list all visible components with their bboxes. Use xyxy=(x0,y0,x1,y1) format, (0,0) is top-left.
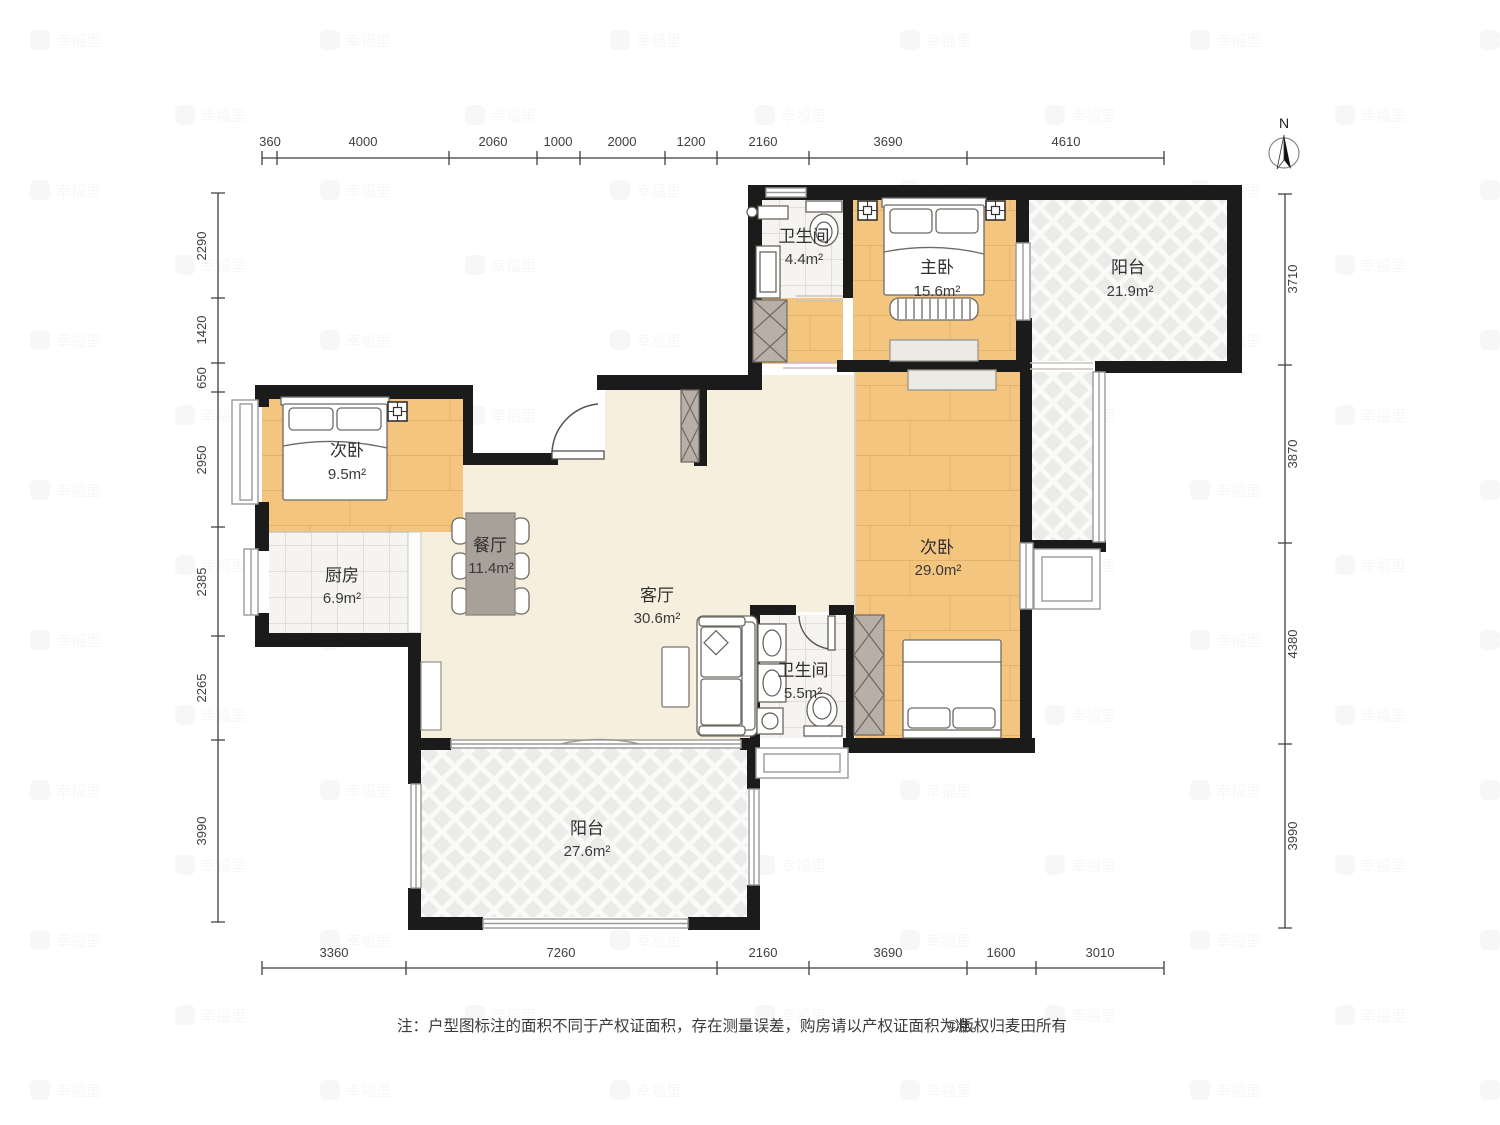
room-label-balcony-bottom: 阳台 xyxy=(570,819,604,838)
dim-top-5: 1200 xyxy=(677,134,706,149)
bench-master xyxy=(890,298,978,320)
ac-icon xyxy=(388,402,407,421)
dim-top-0: 360 xyxy=(259,134,281,149)
room-label-bedroom-left: 次卧 xyxy=(330,441,364,460)
coffee-table xyxy=(662,647,689,707)
sofa xyxy=(697,616,757,736)
dim-bottom-5: 3010 xyxy=(1086,945,1115,960)
window-balcony-bottom xyxy=(483,919,688,928)
dim-right-3: 3990 xyxy=(1285,822,1300,851)
dim-top-7: 3690 xyxy=(874,134,903,149)
bed-master xyxy=(882,198,986,295)
room-area-dining: 11.4m² xyxy=(468,560,514,577)
room-label-bath-bottom: 卫生间 xyxy=(778,661,829,680)
room-area-bath-top: 4.4m² xyxy=(785,251,823,268)
room-area-living: 30.6m² xyxy=(634,610,681,627)
bay-window-bath-bottom xyxy=(756,748,848,778)
dim-left-1: 1420 xyxy=(194,316,209,345)
room-area-master: 15.6m² xyxy=(914,283,961,300)
dim-top-8: 4610 xyxy=(1052,134,1081,149)
tv-cabinet xyxy=(421,662,441,730)
room-area-balcony-top: 21.9m² xyxy=(1107,283,1154,300)
dim-left-5: 2265 xyxy=(194,674,209,703)
bay-window-bedroom-right xyxy=(1034,549,1100,609)
wardrobe-bedroom-right xyxy=(854,615,884,735)
floor-plan-canvas: 幸福里 幸福里 xyxy=(0,0,1500,1125)
room-label-balcony-top: 阳台 xyxy=(1111,258,1145,277)
room-label-bath-top: 卫生间 xyxy=(779,227,830,246)
dim-top-1: 4000 xyxy=(349,134,378,149)
dim-right-2: 4380 xyxy=(1285,630,1300,659)
room-area-balcony-bottom: 27.6m² xyxy=(564,843,611,860)
dim-top-2: 2060 xyxy=(479,134,508,149)
room-label-bedroom-right: 次卧 xyxy=(920,538,954,557)
window-balcony-right xyxy=(749,789,759,885)
dim-bottom-3: 3690 xyxy=(874,945,903,960)
disclaimer-note: 注：户型图标注的面积不同于产权证面积，存在测量误差，购房请以产权证面积为准。 ©… xyxy=(397,1017,1067,1035)
room-area-bedroom-right: 29.0m² xyxy=(915,562,962,579)
copyright-text: ©版权归麦田所有 xyxy=(947,1017,1067,1035)
room-area-kitchen: 6.9m² xyxy=(323,590,361,607)
room-label-master: 主卧 xyxy=(920,258,954,277)
floor-plan-page: 幸福里 幸福里 xyxy=(0,0,1500,1125)
note-text: 注：户型图标注的面积不同于产权证面积，存在测量误差，购房请以产权证面积为准。 xyxy=(397,1017,986,1035)
dim-right-1: 3870 xyxy=(1285,440,1300,469)
bed-bedroom-right xyxy=(903,640,1001,738)
sliding-door-living-balcony xyxy=(451,740,741,749)
window-master-balcony xyxy=(1016,243,1030,320)
dim-bottom-2: 2160 xyxy=(749,945,778,960)
dim-bottom-1: 7260 xyxy=(547,945,576,960)
dim-top-4: 2000 xyxy=(608,134,637,149)
window-bath-top xyxy=(766,188,806,197)
room-area-bath-bottom: 5.5m² xyxy=(784,685,822,702)
north-label: N xyxy=(1279,115,1289,131)
dim-left-3: 2950 xyxy=(194,446,209,475)
dim-top-6: 2160 xyxy=(749,134,778,149)
bay-window-bedroom-left xyxy=(232,400,258,504)
dim-right-0: 3710 xyxy=(1285,265,1300,294)
ac-icon xyxy=(986,201,1005,220)
dim-left-4: 2385 xyxy=(194,568,209,597)
room-label-dining: 餐厅 xyxy=(473,536,507,555)
dim-left-2: 650 xyxy=(194,367,209,389)
dresser-bedroom-right xyxy=(908,370,996,390)
dim-left-0: 2290 xyxy=(194,232,209,261)
ac-icon xyxy=(858,201,877,220)
dim-bottom-0: 3360 xyxy=(320,945,349,960)
closet-corridor xyxy=(753,300,787,362)
dim-top-3: 1000 xyxy=(544,134,573,149)
room-label-living: 客厅 xyxy=(640,586,674,605)
dim-bottom-4: 1600 xyxy=(987,945,1016,960)
shoe-cabinet-entry xyxy=(681,390,699,462)
window-balcony-left xyxy=(411,784,421,888)
window-bedroom-right xyxy=(1020,543,1033,609)
dresser-master xyxy=(890,340,978,361)
window-kitchen xyxy=(244,549,258,615)
dim-left-6: 3990 xyxy=(194,817,209,846)
window-corridor xyxy=(1093,372,1105,542)
room-label-kitchen: 厨房 xyxy=(325,566,359,585)
room-area-bedroom-left: 9.5m² xyxy=(328,466,366,483)
